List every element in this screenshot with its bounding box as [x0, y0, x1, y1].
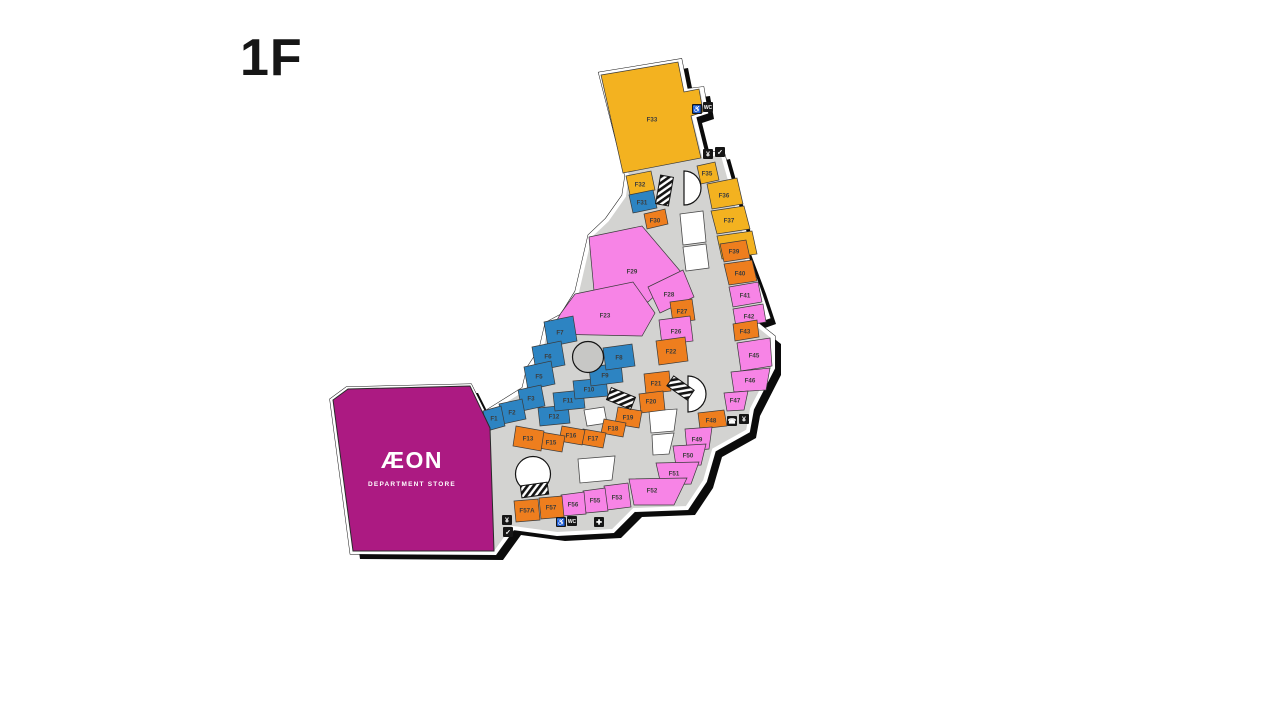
atm-icon: ¥: [502, 515, 512, 525]
store-F45[interactable]: F45: [737, 338, 772, 371]
store-F35[interactable]: F35: [697, 162, 719, 184]
svg-text:☎: ☎: [728, 417, 737, 425]
store-label: F48: [706, 418, 717, 425]
store-F57A[interactable]: F57A: [514, 499, 540, 522]
svg-text:¥: ¥: [706, 151, 710, 158]
store-label: F30: [650, 218, 661, 225]
store-label: F56: [568, 502, 579, 509]
store-label: F18: [608, 426, 619, 433]
store-F40[interactable]: F40: [724, 260, 757, 285]
store-F46[interactable]: F46: [731, 368, 770, 392]
store-label: F39: [729, 249, 740, 256]
store-F21[interactable]: F21: [644, 371, 671, 394]
store-label: F45: [749, 353, 760, 360]
store-label: F31: [637, 200, 648, 207]
store-F48[interactable]: F48: [698, 410, 727, 429]
store-label: F2: [508, 410, 516, 417]
store-label: F1: [490, 416, 498, 423]
store-label: F3: [527, 396, 535, 403]
store-label: F47: [730, 398, 741, 405]
store-label: F15: [546, 440, 557, 447]
store-F22[interactable]: F22: [656, 337, 688, 365]
vacant-unit: [649, 409, 677, 433]
store-F47[interactable]: F47: [724, 391, 748, 411]
store-label: F35: [702, 171, 713, 178]
store-label: F17: [588, 436, 599, 443]
store-label: F33: [647, 117, 658, 124]
aeon-sub-label: DEPARTMENT STORE: [368, 481, 456, 488]
store-label: F42: [744, 314, 755, 321]
store-label: F21: [651, 381, 662, 388]
svg-text:WC: WC: [704, 105, 713, 111]
atm-icon: ¥: [703, 149, 713, 159]
store-F37[interactable]: F37: [711, 206, 750, 234]
store-label: F20: [646, 399, 657, 406]
store-label: F29: [627, 269, 638, 276]
store-F57[interactable]: F57: [539, 496, 564, 519]
store-label: F22: [666, 349, 677, 356]
store-label: F57A: [519, 508, 535, 515]
accessible-icon: ♿: [692, 104, 702, 114]
store-F39[interactable]: F39: [720, 240, 750, 262]
svg-text:¥: ¥: [742, 416, 746, 423]
store-F36[interactable]: F36: [707, 178, 743, 209]
store-aeon-department-store[interactable]: ÆONDEPARTMENT STORE: [333, 386, 494, 551]
store-label: F23: [600, 313, 611, 320]
store-label: F6: [544, 354, 552, 361]
svg-text:¥: ¥: [505, 517, 509, 524]
store-label: F11: [563, 398, 574, 405]
store-F56[interactable]: F56: [561, 492, 586, 516]
store-F43[interactable]: F43: [733, 320, 759, 341]
store-label: F36: [719, 193, 730, 200]
store-label: F53: [612, 495, 623, 502]
store-label: F28: [664, 292, 675, 299]
svg-text:♿: ♿: [693, 104, 702, 113]
store-label: F19: [623, 415, 634, 422]
store-label: F37: [724, 218, 735, 225]
store-label: F52: [647, 488, 658, 495]
vacant-unit: [680, 211, 706, 245]
store-label: F10: [584, 387, 595, 394]
store-label: F43: [740, 329, 751, 336]
svg-text:WC: WC: [568, 519, 577, 525]
restroom-icon: WC: [567, 516, 577, 526]
svg-text:♿: ♿: [557, 517, 566, 526]
round-plaza: [573, 342, 604, 373]
store-label: F57: [546, 505, 557, 512]
store-F53[interactable]: F53: [604, 483, 631, 510]
store-label: F41: [740, 293, 751, 300]
vacant-unit: [578, 456, 615, 483]
store-label: F27: [677, 309, 688, 316]
mall-floor-map-slide: 1F F33F32F35F36F37F38F31F30F39F40F41F42F…: [0, 0, 1280, 720]
map-root: F33F32F35F36F37F38F31F30F39F40F41F42F43F…: [332, 61, 781, 560]
store-label: F5: [535, 374, 543, 381]
store-label: F13: [523, 436, 534, 443]
aeon-logo: ÆON: [381, 447, 443, 473]
phone-icon: ☎: [727, 416, 737, 426]
store-label: F26: [671, 329, 682, 336]
svg-text:✓: ✓: [717, 149, 723, 156]
store-F20[interactable]: F20: [639, 391, 665, 413]
store-label: F46: [745, 378, 756, 385]
floor-plan: F33F32F35F36F37F38F31F30F39F40F41F42F43F…: [0, 0, 1280, 720]
store-label: F50: [683, 453, 694, 460]
atm-icon: ¥: [739, 414, 749, 424]
restroom-icon: WC: [703, 102, 713, 112]
store-label: F8: [615, 355, 623, 362]
store-label: F9: [601, 373, 609, 380]
store-F55[interactable]: F55: [583, 488, 608, 513]
vacant-unit: [683, 244, 709, 271]
accessible-icon: ♿: [556, 517, 566, 527]
store-label: F32: [635, 182, 646, 189]
store-label: F49: [692, 437, 703, 444]
store-label: F16: [566, 433, 577, 440]
svg-text:✓: ✓: [505, 529, 511, 536]
store-label: F51: [669, 471, 680, 478]
store-F8[interactable]: F8: [603, 344, 635, 370]
store-label: F55: [590, 498, 601, 505]
service-icon: ✓: [715, 147, 725, 157]
store-label: F7: [556, 330, 564, 337]
service-icon: ✓: [503, 527, 513, 537]
store-label: F40: [735, 271, 746, 278]
svg-text:✚: ✚: [596, 518, 602, 526]
first-aid-icon: ✚: [594, 517, 604, 527]
store-label: F12: [549, 414, 560, 421]
